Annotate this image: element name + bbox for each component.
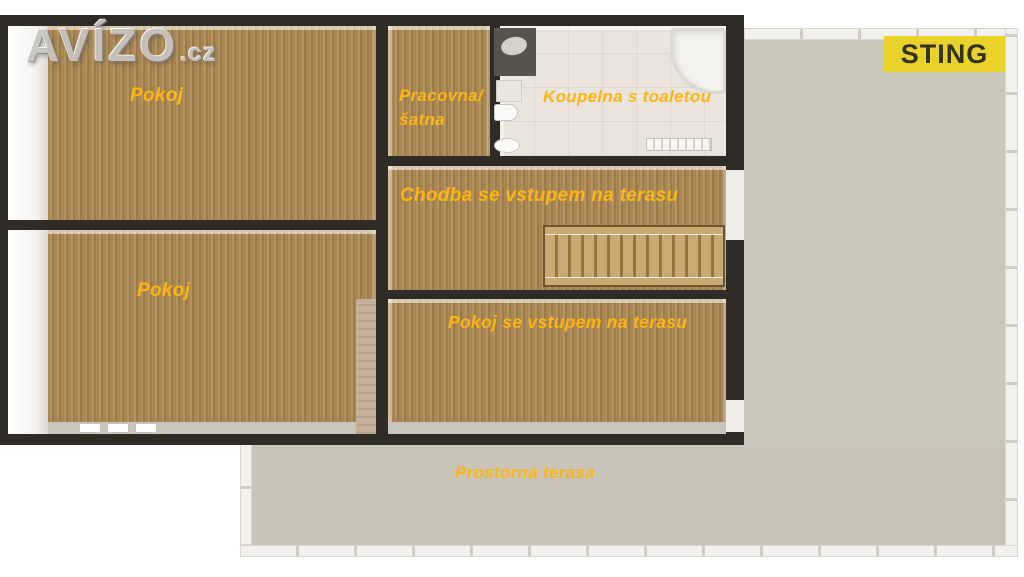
avizo-watermark: AVÍZO.cz (26, 18, 217, 72)
terrace-railing-left (240, 442, 252, 545)
terrace-door-hall (726, 170, 744, 240)
stair-rail-bottom (545, 278, 723, 285)
washbasin (494, 138, 520, 153)
terrace-door-lower (726, 400, 744, 432)
room-label-chodba: Chodba se vstupem na terasu (400, 185, 678, 207)
watermark-suffix: .cz (180, 39, 216, 67)
stair-rail-top (545, 227, 723, 234)
toilet (494, 104, 518, 121)
room-label-pokoj-bottom: Pokoj (137, 280, 190, 302)
room-label-pracovna-line1: Pracovna/ (399, 84, 483, 108)
staircase (543, 225, 725, 287)
room-label-pracovna: Pracovna/ šatna (399, 84, 483, 132)
room-label-pracovna-line2: šatna (399, 108, 483, 132)
room-label-pokoj-top: Pokoj (130, 85, 183, 107)
room-label-terasa: Prostorná terasa (455, 463, 595, 483)
floorplan-canvas: Pokoj Pracovna/ šatna Koupelna s toaleto… (0, 0, 1024, 577)
bottom-wall-ledge (48, 422, 376, 434)
terrace-floor-bottom (252, 442, 1008, 545)
built-in-wardrobe (356, 299, 376, 434)
room-pokoj-bottom (8, 230, 376, 434)
shower-tray (499, 34, 528, 57)
window-strip-left-bottom (8, 230, 48, 434)
radiator (646, 138, 712, 151)
window-mark (136, 424, 156, 432)
terrace-railing-bottom (240, 545, 1018, 557)
shower (494, 28, 536, 76)
room-label-koupelna: Koupelna s toaletou (543, 87, 711, 107)
sting-badge: STING (884, 36, 1005, 72)
room-label-pokoj-terasa: Pokoj se vstupem na terasu (448, 312, 687, 333)
window-mark (108, 424, 128, 432)
bathtub (670, 28, 726, 94)
floorplan-building (0, 15, 744, 445)
window-mark (80, 424, 100, 432)
terrace-railing-right (1005, 28, 1018, 557)
bottom-wall-ledge (388, 422, 726, 434)
watermark-brand: AVÍZO (26, 19, 178, 71)
sting-badge-label: STING (901, 39, 989, 70)
bathroom-cabinet (496, 80, 522, 102)
